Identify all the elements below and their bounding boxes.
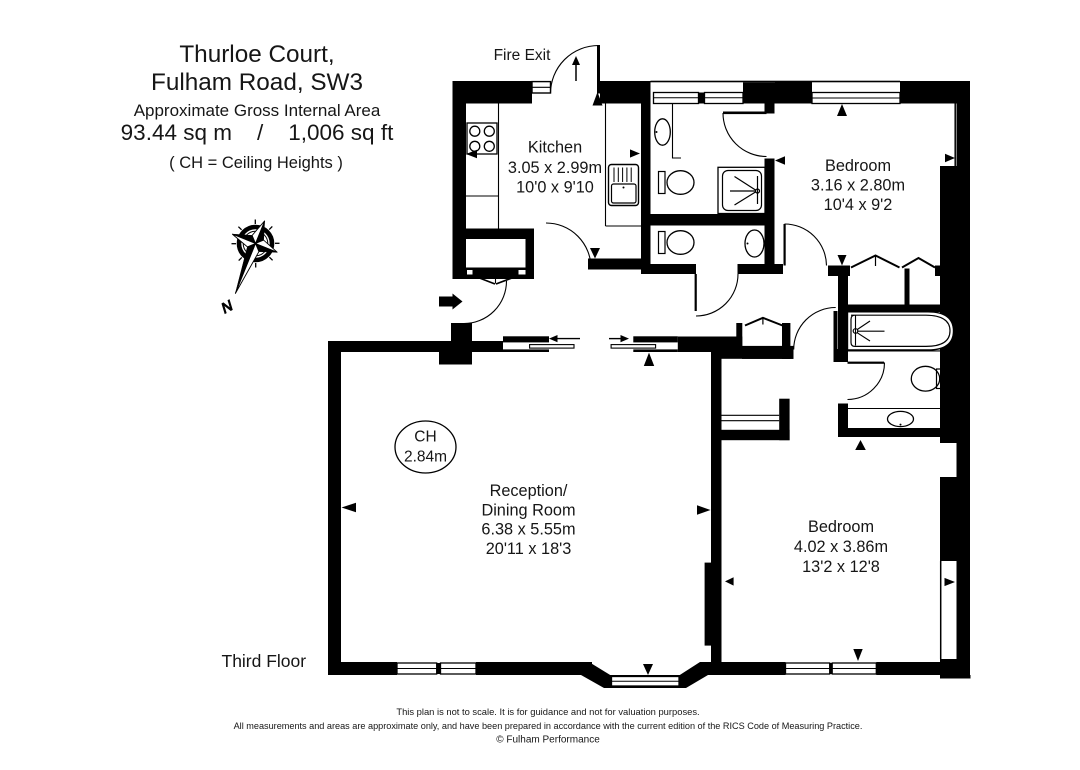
svg-text:20'11 x 18'3: 20'11 x 18'3 (486, 540, 572, 558)
svg-text:3.05 x 2.99m: 3.05 x 2.99m (508, 159, 602, 177)
svg-text:10'0 x 9'10: 10'0 x 9'10 (516, 179, 594, 197)
svg-text:CH: CH (414, 429, 436, 446)
svg-text:13'2 x 12'8: 13'2 x 12'8 (802, 558, 880, 576)
svg-text:3.16 x 2.80m: 3.16 x 2.80m (811, 177, 905, 195)
svg-text:10'4 x 9'2: 10'4 x 9'2 (824, 196, 893, 214)
svg-text:Reception/: Reception/ (490, 482, 568, 500)
svg-text:2.84m: 2.84m (404, 449, 447, 466)
svg-text:Bedroom: Bedroom (825, 157, 891, 175)
svg-text:4.02 x 3.86m: 4.02 x 3.86m (794, 538, 888, 556)
svg-text:This plan is not to scale. It: This plan is not to scale. It is for gui… (396, 706, 699, 717)
svg-text:( CH = Ceiling Heights ): ( CH = Ceiling Heights ) (169, 154, 343, 172)
svg-text:Bedroom: Bedroom (808, 518, 874, 536)
svg-text:Dining Room: Dining Room (481, 502, 575, 520)
svg-text:Thurloe Court,: Thurloe Court, (179, 41, 334, 68)
svg-text:Kitchen: Kitchen (528, 139, 582, 157)
svg-text:All measurements and areas are: All measurements and areas are approxima… (234, 721, 863, 731)
svg-text:Approximate Gross Internal Are: Approximate Gross Internal Area (134, 101, 381, 120)
svg-text:Fire Exit: Fire Exit (494, 47, 552, 64)
svg-text:Fulham Road, SW3: Fulham Road, SW3 (151, 69, 363, 96)
svg-text:93.44 sq m / 1,006 sq ft: 93.44 sq m / 1,006 sq ft (121, 120, 394, 145)
svg-text:© Fulham Performance: © Fulham Performance (496, 735, 600, 746)
svg-text:6.38 x 5.55m: 6.38 x 5.55m (481, 521, 575, 539)
svg-text:Third Floor: Third Floor (222, 651, 307, 671)
